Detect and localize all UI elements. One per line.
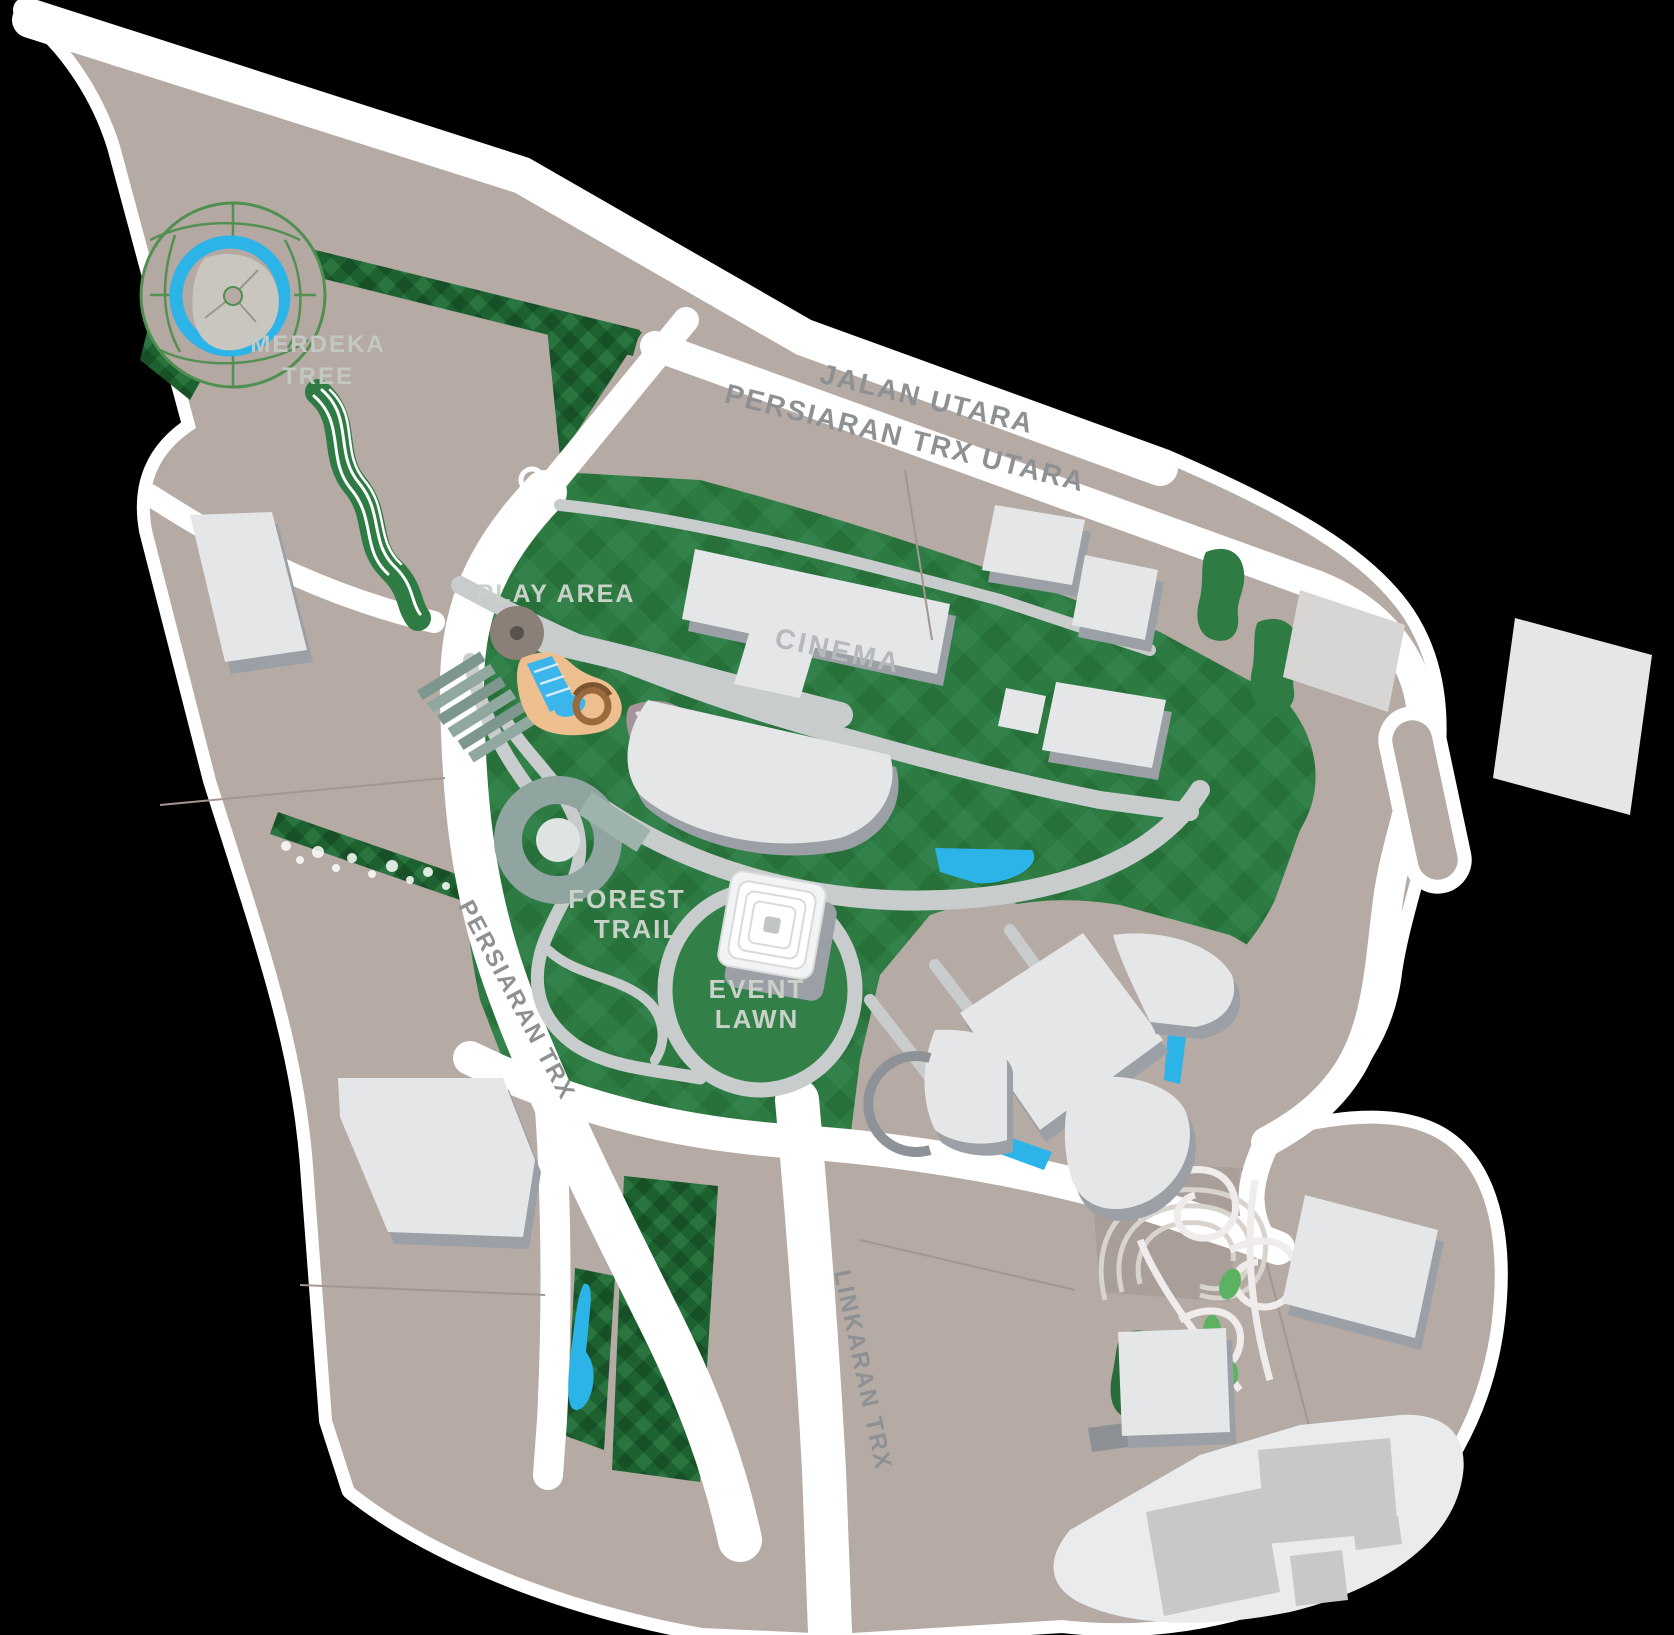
label-merdeka-tree-line1: MERDEKA <box>250 331 385 358</box>
label-forest-trail-line2: TRAIL <box>594 914 681 944</box>
label-event-lawn-line2: LAWN <box>715 1004 800 1034</box>
building-district-west <box>1118 1328 1230 1436</box>
label-event-lawn-line1: EVENT <box>709 974 806 1004</box>
label-forest-trail-line1: FOREST <box>568 884 685 914</box>
trx-park-map: MERDEKA TREE PLAY AREA CINEMA FOREST TRA… <box>0 0 1674 1635</box>
merdeka-tree-feature <box>141 203 325 388</box>
label-play-area: PLAY AREA <box>477 580 636 608</box>
map-canvas: MERDEKA TREE PLAY AREA CINEMA FOREST TRA… <box>0 0 1674 1635</box>
building-small-square <box>998 688 1046 734</box>
label-merdeka-tree-line2: TREE <box>282 363 354 390</box>
cluster-petal-west <box>924 1030 1007 1144</box>
building-ne-b <box>1072 555 1158 640</box>
road-south-west <box>548 1082 555 1475</box>
